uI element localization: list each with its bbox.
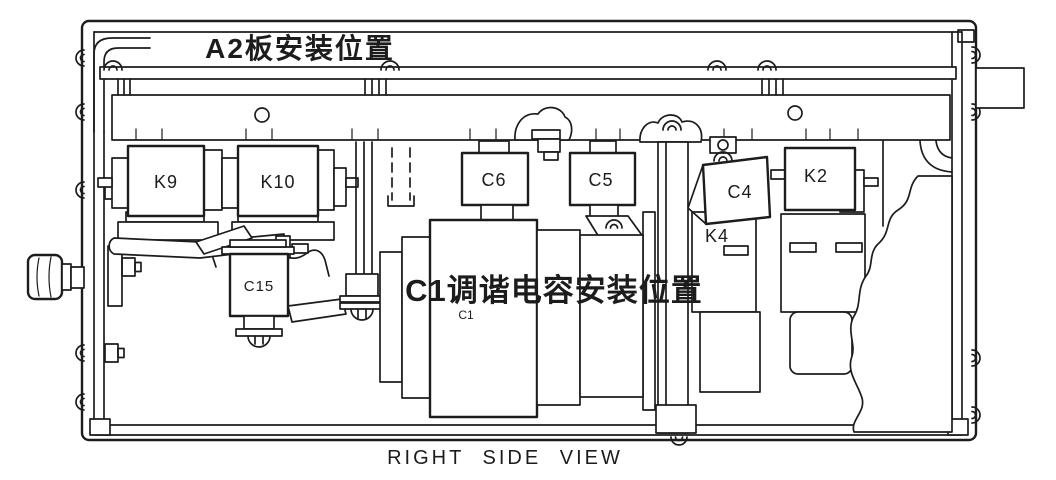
c15-top-plate-2 [230, 240, 286, 247]
connector-block [976, 68, 1024, 108]
bracket-bolt-tip [135, 263, 141, 272]
c1-label: C1 [458, 308, 474, 322]
standoff [118, 79, 130, 95]
knob-shaft [62, 264, 71, 290]
bar-foot [656, 405, 696, 433]
tuning-capacitor-c1 [380, 212, 655, 417]
cable-clamp [640, 115, 702, 142]
right-side-view-drawing: K9 K10 C15 [0, 0, 1056, 480]
capacitor-c4: C4 [688, 137, 770, 224]
c1-section-main [430, 220, 537, 417]
c1-section-4 [537, 230, 580, 405]
c6-bottom-tab [481, 205, 513, 220]
k2-lower-box [790, 312, 852, 374]
c15-tab [244, 316, 274, 329]
knob-body [28, 255, 62, 299]
a2-board-rail [100, 67, 956, 79]
k9-label: K9 [154, 172, 178, 192]
technical-drawing-page: K9 K10 C15 [0, 0, 1056, 480]
shelf-ticks [136, 129, 858, 140]
post-plate [340, 296, 384, 302]
note-c1-position: C1调谐电容安装位置 [405, 273, 703, 308]
caption-right-side-view: RIGHT SIDE VIEW [387, 447, 623, 469]
rear-connector [976, 68, 1024, 108]
capacitor-c6: C6 [462, 141, 528, 220]
mounting-hole [255, 108, 269, 122]
wall-bolt [105, 344, 118, 362]
clamp-tab-step [544, 152, 558, 160]
corner-curve-inner [936, 141, 952, 158]
frame-elbow-outer [94, 38, 150, 132]
k9-flange-left [112, 158, 128, 208]
c15-label: C15 [244, 278, 275, 295]
post-plate-2 [340, 303, 384, 309]
bracket-bolt [122, 258, 135, 276]
k2-pin-left [771, 170, 785, 179]
knob-shaft-step [71, 267, 84, 288]
bottom-rail [94, 425, 962, 435]
capacitor-c15: C15 [222, 240, 346, 347]
k9-pin-left [98, 178, 112, 187]
c15-arm [288, 299, 346, 322]
c4-label: C4 [727, 182, 752, 202]
screw-head-icon [351, 309, 373, 320]
k4-lower-box [700, 312, 760, 392]
c1-section-1 [380, 252, 402, 382]
standoff [762, 79, 783, 95]
cable-clamp [515, 108, 572, 140]
post-foot [346, 274, 378, 296]
left-foot [90, 419, 110, 435]
c1-section-5 [580, 235, 643, 397]
mounting-hole [788, 106, 802, 120]
c1-section-2 [402, 237, 430, 398]
k4-label: K4 [705, 226, 729, 246]
c5-label: C5 [588, 170, 613, 190]
post-lines [356, 142, 372, 276]
wall-bolt-tip [118, 349, 124, 358]
clamp-tab [538, 139, 560, 152]
note-a2-position: A2板安装位置 [205, 32, 395, 64]
k10-flange-left [222, 158, 238, 208]
k10-label: K10 [260, 172, 295, 192]
c15-plate [236, 329, 282, 336]
k10-flange-right-2 [334, 168, 346, 206]
k2-label: K2 [804, 166, 828, 186]
screw-head-icon [248, 336, 270, 347]
capacitor-c5: C5 [570, 141, 644, 242]
standoff [365, 79, 386, 95]
c6-label: C6 [481, 170, 506, 190]
hidden-lines [392, 148, 410, 200]
k2-pin-right [864, 178, 878, 186]
k9-flange-right [204, 150, 222, 210]
k9-base [118, 222, 218, 240]
k2-base [781, 214, 865, 312]
c1-rear-plate [643, 212, 655, 410]
